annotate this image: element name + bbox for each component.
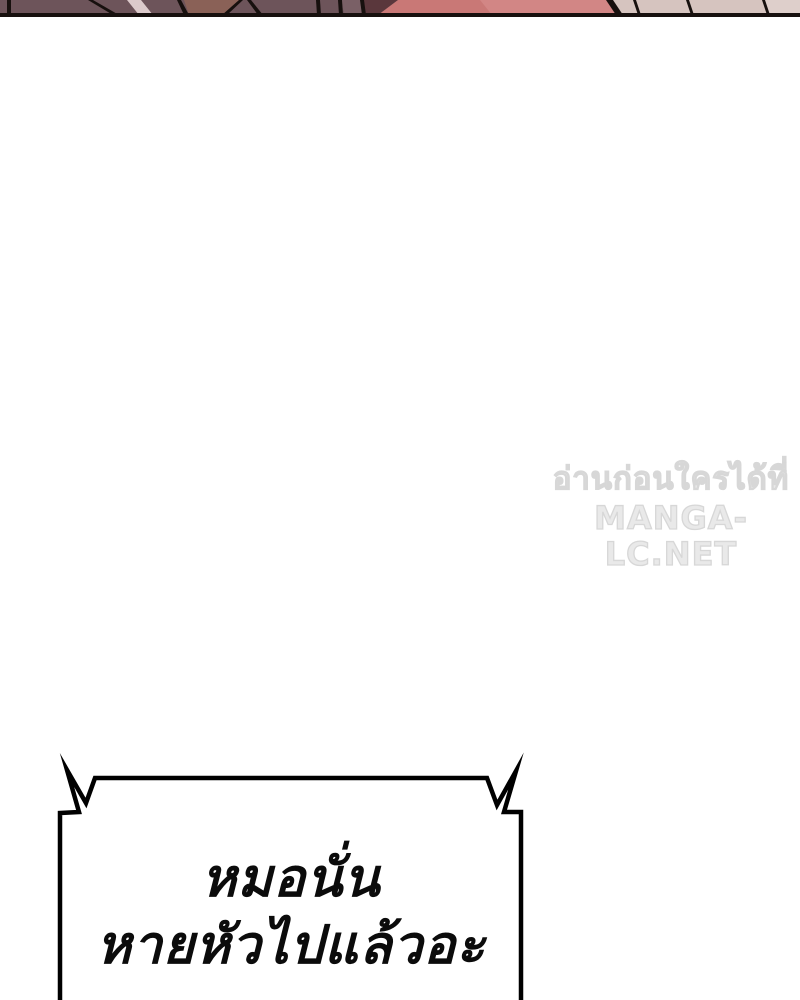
speech-bubble-text: หมอนั่น หายหัวไปแล้วอะ — [62, 845, 520, 979]
comic-panel-art-strip — [0, 0, 800, 17]
watermark-thai-text: อ่านก่อนใครได้ที่ — [548, 458, 794, 500]
watermark-site-name: MANGA-LC.NET — [548, 500, 794, 572]
art-strip-canvas — [0, 0, 800, 17]
art-pink-light-area — [480, 0, 621, 15]
site-watermark: อ่านก่อนใครได้ที่ MANGA-LC.NET — [548, 458, 794, 572]
art-beige-light-area — [765, 0, 800, 15]
speech-text-line-1: หมอนั่น — [62, 845, 520, 912]
comic-page: อ่านก่อนใครได้ที่ MANGA-LC.NET หมอนั่น ห… — [0, 0, 800, 1000]
speech-text-line-2: หายหัวไปแล้วอะ — [62, 912, 520, 979]
art-panel-border — [0, 13, 800, 17]
art-line-vertical-left — [7, 0, 11, 15]
